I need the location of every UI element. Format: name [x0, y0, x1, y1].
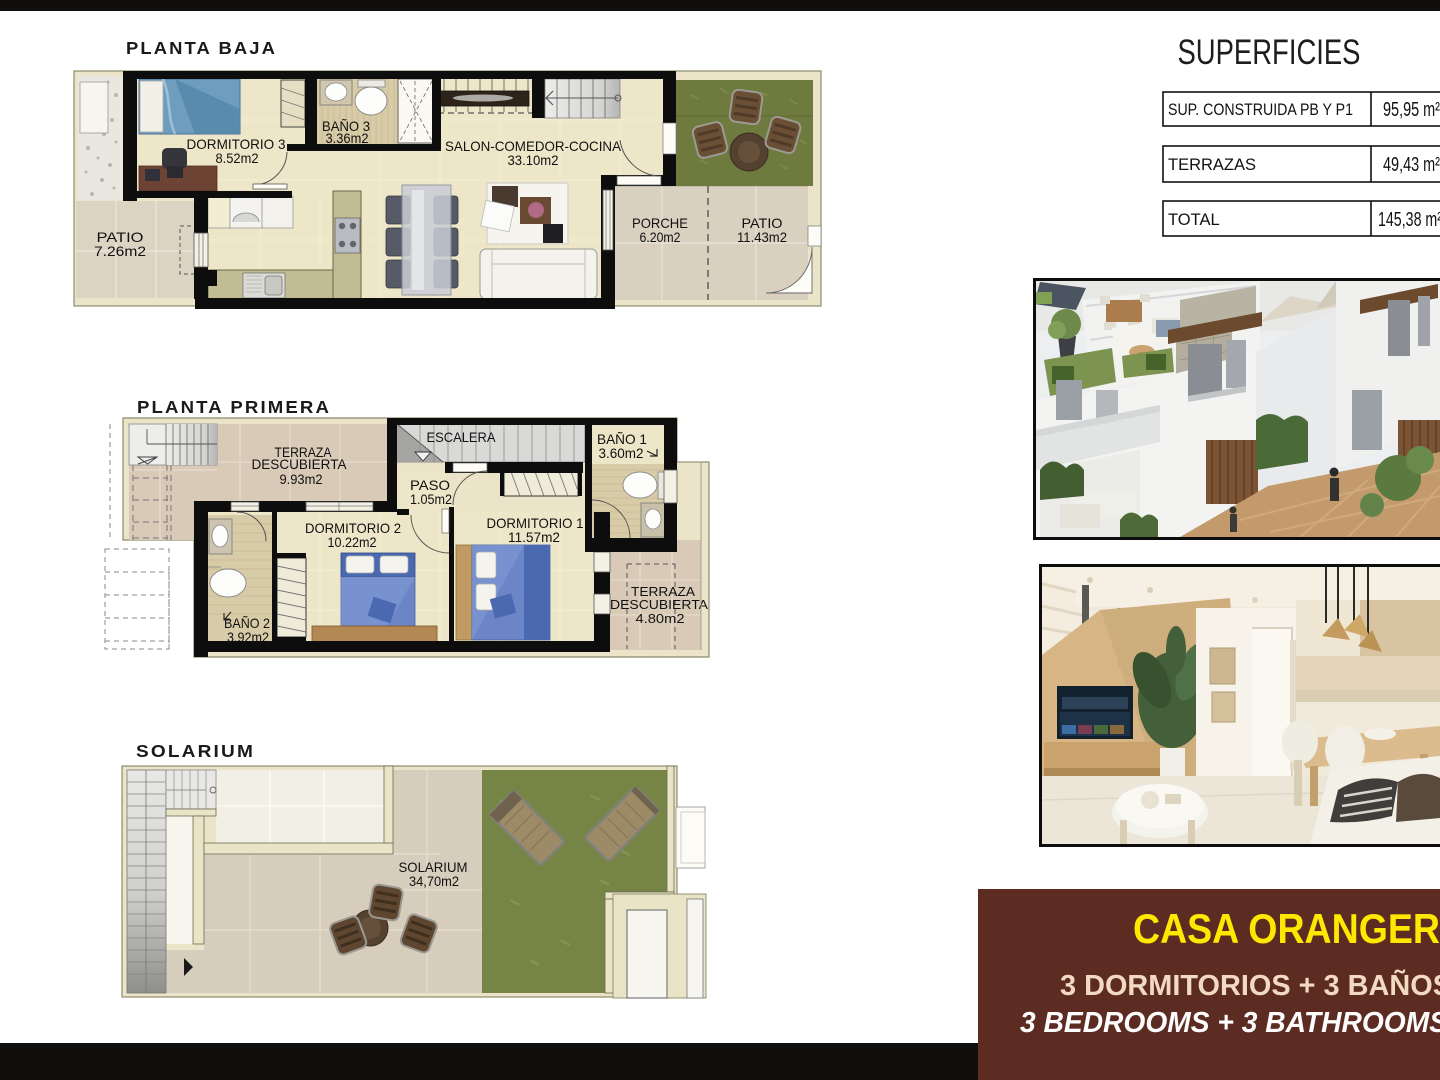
svg-text:TOTAL: TOTAL	[1168, 211, 1220, 229]
svg-text:7.26m2: 7.26m2	[94, 243, 146, 259]
svg-text:DESCUBIERTA: DESCUBIERTA	[252, 456, 348, 472]
svg-text:3.60m2: 3.60m2	[599, 445, 644, 461]
svg-text:SUPERFICIES: SUPERFICIES	[1178, 33, 1361, 72]
svg-text:PLANTA BAJA: PLANTA BAJA	[126, 38, 277, 58]
svg-text:49,43 m²: 49,43 m²	[1383, 154, 1440, 176]
svg-text:1.05m2: 1.05m2	[410, 491, 452, 507]
svg-text:145,38 m²: 145,38 m²	[1378, 209, 1440, 231]
svg-text:8.52m2: 8.52m2	[216, 150, 259, 166]
svg-text:SUP. CONSTRUIDA PB Y P1: SUP. CONSTRUIDA PB Y P1	[1168, 101, 1353, 119]
svg-text:10.22m2: 10.22m2	[328, 534, 377, 550]
svg-text:33.10m2: 33.10m2	[508, 152, 559, 168]
svg-text:3.36m2: 3.36m2	[326, 130, 369, 146]
svg-text:11.57m2: 11.57m2	[508, 529, 560, 545]
svg-text:11.43m2: 11.43m2	[737, 229, 787, 245]
svg-text:4.80m2: 4.80m2	[636, 611, 685, 626]
svg-text:TERRAZAS: TERRAZAS	[1168, 156, 1256, 174]
svg-text:DESCUBIERTA: DESCUBIERTA	[610, 597, 708, 612]
svg-text:95,95 m²: 95,95 m²	[1383, 99, 1440, 121]
svg-text:SOLARIUM: SOLARIUM	[136, 741, 255, 761]
svg-text:9.93m2: 9.93m2	[280, 471, 323, 487]
svg-text:6.20m2: 6.20m2	[640, 229, 681, 245]
svg-text:3 BEDROOMS + 3 BATHROOMS: 3 BEDROOMS + 3 BATHROOMS	[1020, 1007, 1440, 1039]
svg-text:ESCALERA: ESCALERA	[427, 429, 497, 445]
svg-text:34,70m2: 34,70m2	[409, 873, 459, 889]
svg-text:3 DORMITORIOS + 3 BAÑOS: 3 DORMITORIOS + 3 BAÑOS	[1060, 968, 1440, 1002]
svg-text:CASA ORANGERS: CASA ORANGERS	[1133, 905, 1440, 952]
svg-text:PLANTA PRIMERA: PLANTA PRIMERA	[137, 397, 331, 417]
